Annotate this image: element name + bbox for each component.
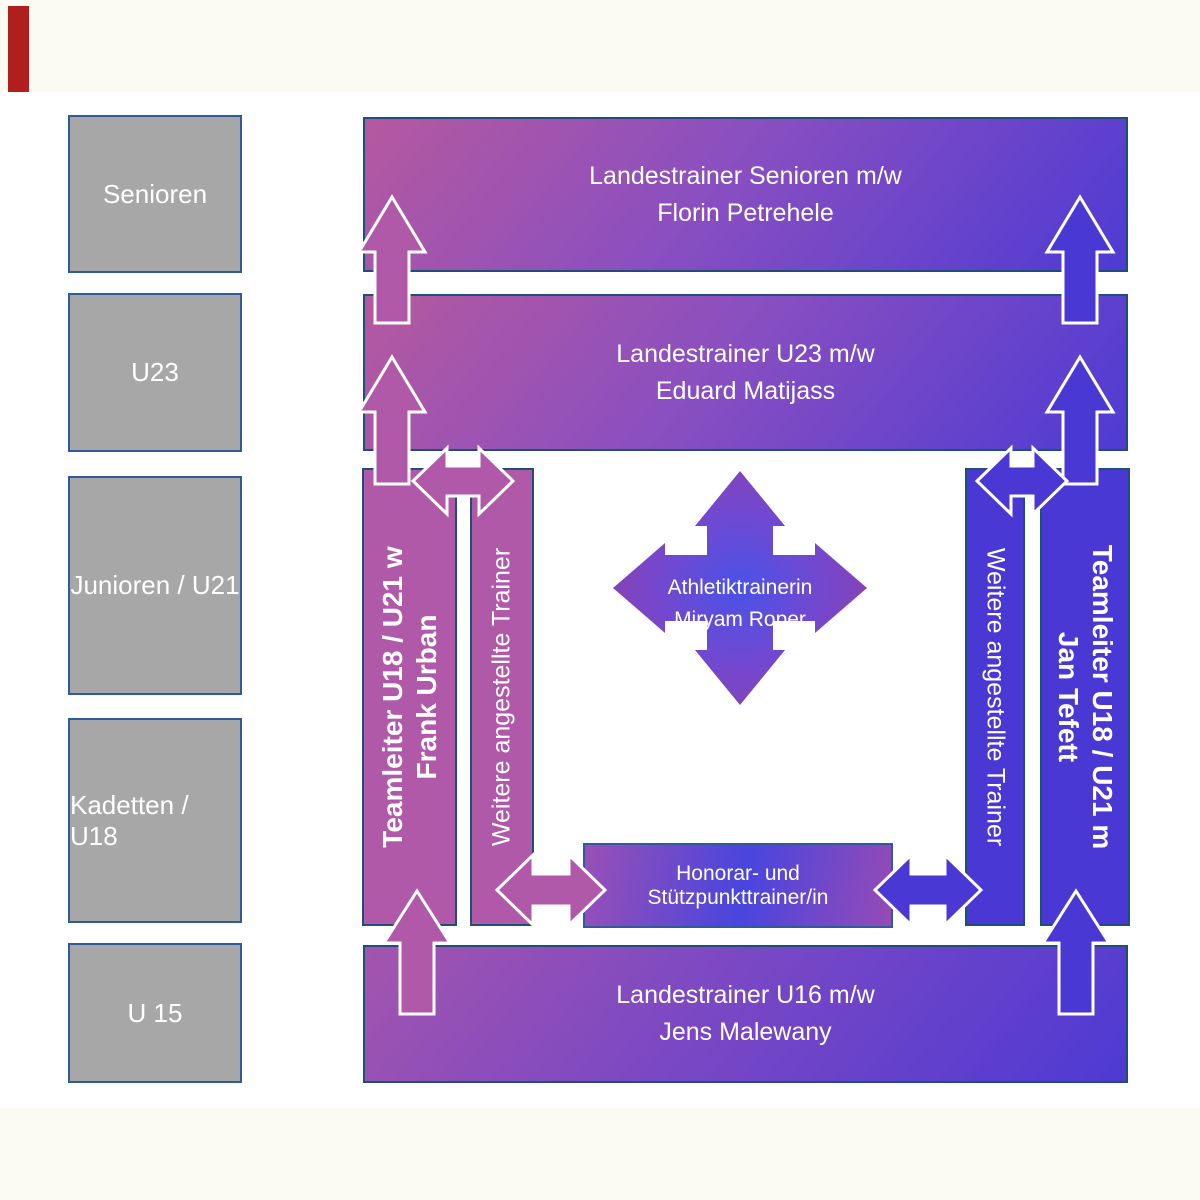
category-box-kadetten-u18: Kadetten / U18 — [68, 718, 242, 923]
category-box-junioren-u21: Junioren / U21 — [68, 476, 242, 695]
bar-landestrainer-senioren: Landestrainer Senioren m/w Florin Petreh… — [363, 117, 1128, 272]
bar-teamleiter-u18-u21-m: Teamleiter U18 / U21 m Jan Tefett — [1040, 468, 1130, 926]
bar-weitere-trainer-left: Weitere angestellte Trainer — [470, 468, 534, 926]
bar-landestrainer-u16: Landestrainer U16 m/w Jens Malewany — [363, 945, 1128, 1083]
bar-person: Eduard Matijass — [656, 373, 835, 410]
category-box-senioren: Senioren — [68, 115, 242, 273]
bar-rotated-text: Weitere angestellte Trainer — [490, 548, 515, 846]
bar-rotated-text: Weitere angestellte Trainer — [983, 548, 1008, 846]
bar-title: Teamleiter U18 / U21 w — [376, 546, 410, 847]
category-label: U23 — [131, 357, 179, 388]
bar-person: Jan Tefett — [1051, 545, 1085, 850]
bar-person: Jens Malewany — [659, 1014, 831, 1051]
bar-title: Landestrainer Senioren m/w — [589, 158, 902, 195]
bar-person: Frank Urban — [410, 546, 444, 847]
category-box-u15: U 15 — [68, 943, 242, 1083]
slide-canvas: Senioren U23 Junioren / U21 Kadetten / U… — [0, 0, 1200, 1200]
bar-rotated-text: Teamleiter U18 / U21 w Frank Urban — [376, 546, 444, 847]
bar-title: Landestrainer U23 m/w — [616, 336, 874, 373]
bar-person: Florin Petrehele — [657, 195, 833, 232]
category-box-u23: U23 — [68, 293, 242, 452]
category-label: Senioren — [103, 179, 207, 210]
bar-title: Landestrainer U16 m/w — [616, 977, 874, 1014]
box-honorar-stuetzpunkttrainer: Honorar- und Stützpunkttrainer/in — [583, 843, 893, 928]
bar-person: Miryam Roper — [613, 604, 867, 636]
red-edge-shape — [8, 6, 29, 94]
category-label: Junioren / U21 — [70, 570, 239, 601]
label-athletiktrainerin: Athletiktrainerin Miryam Roper — [613, 572, 867, 636]
bar-teamleiter-u18-u21-w: Teamleiter U18 / U21 w Frank Urban — [362, 468, 457, 926]
bar-landestrainer-u23: Landestrainer U23 m/w Eduard Matijass — [363, 294, 1128, 451]
bar-title: Honorar- und Stützpunkttrainer/in — [585, 862, 891, 910]
category-label: Kadetten / U18 — [70, 790, 240, 852]
bar-title: Athletiktrainerin — [613, 572, 867, 604]
bar-weitere-trainer-right: Weitere angestellte Trainer — [965, 468, 1025, 926]
bar-rotated-text: Teamleiter U18 / U21 m Jan Tefett — [1051, 545, 1119, 850]
category-label: U 15 — [128, 998, 183, 1029]
bar-title: Teamleiter U18 / U21 m — [1085, 545, 1119, 850]
